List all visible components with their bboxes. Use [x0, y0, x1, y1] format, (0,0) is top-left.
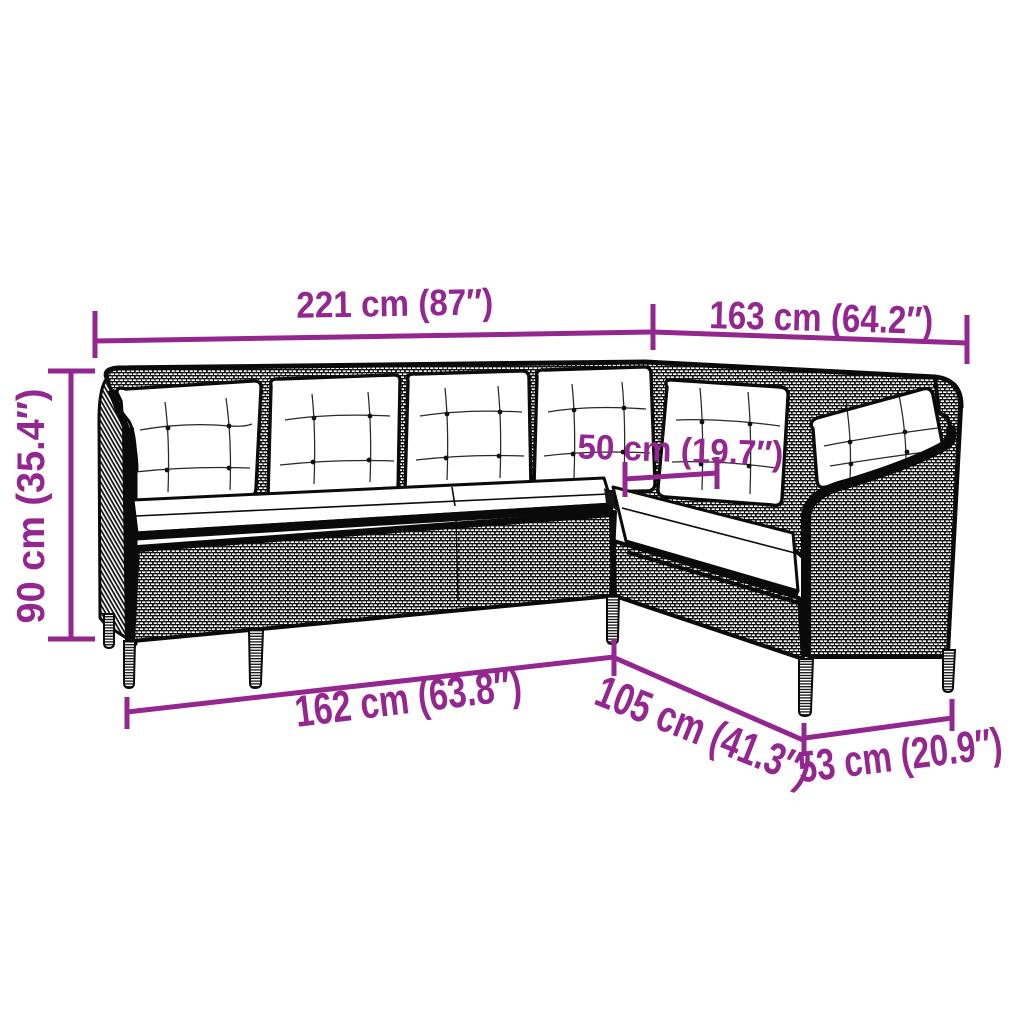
svg-text:90 cm (35.4″): 90 cm (35.4″): [10, 389, 53, 624]
svg-text:50 cm (19.7″): 50 cm (19.7″): [577, 427, 784, 473]
svg-text:163 cm (64.2″): 163 cm (64.2″): [709, 294, 934, 343]
svg-text:221 cm (87″): 221 cm (87″): [296, 281, 494, 325]
